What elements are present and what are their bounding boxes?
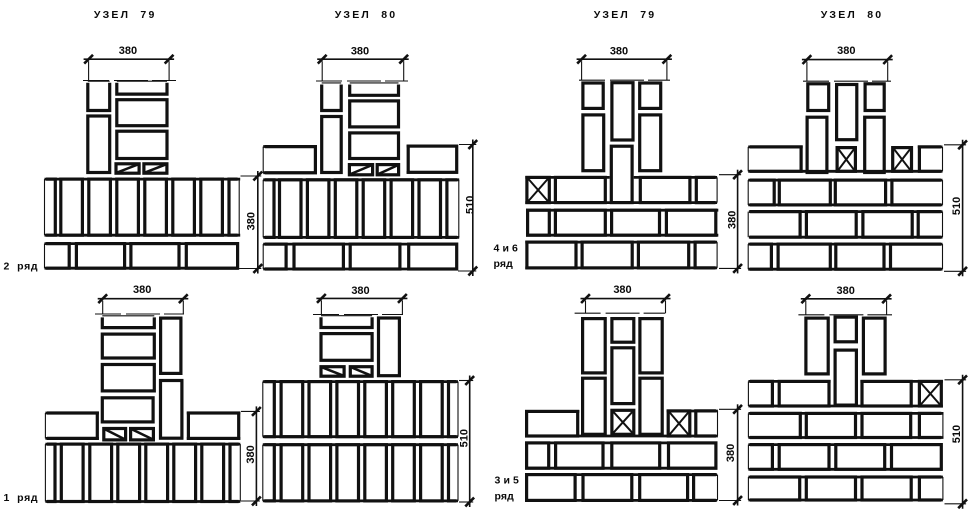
svg-text:380: 380: [245, 212, 257, 230]
svg-text:3 и 5: 3 и 5: [495, 475, 520, 487]
svg-text:ряд: ряд: [495, 491, 515, 503]
svg-text:380: 380: [351, 45, 369, 57]
svg-text:380: 380: [351, 285, 369, 297]
svg-text:510: 510: [459, 429, 471, 447]
svg-text:УЗЕЛ 79: УЗЕЛ 79: [94, 9, 157, 21]
svg-text:510: 510: [951, 197, 963, 215]
svg-text:510: 510: [465, 196, 477, 214]
svg-text:380: 380: [245, 445, 257, 463]
svg-text:УЗЕЛ 79: УЗЕЛ 79: [594, 9, 657, 21]
svg-text:4 и 6: 4 и 6: [494, 242, 519, 254]
svg-text:1 ряд: 1 ряд: [4, 492, 39, 504]
svg-text:380: 380: [837, 45, 855, 57]
svg-text:380: 380: [613, 284, 631, 296]
svg-text:380: 380: [727, 211, 739, 229]
svg-text:510: 510: [951, 425, 963, 443]
svg-text:УЗЕЛ 80: УЗЕЛ 80: [335, 9, 398, 21]
svg-text:380: 380: [725, 444, 737, 462]
svg-text:УЗЕЛ 80: УЗЕЛ 80: [821, 9, 884, 21]
svg-text:380: 380: [610, 45, 628, 57]
svg-text:ряд: ряд: [494, 258, 514, 270]
svg-text:380: 380: [837, 285, 855, 297]
svg-text:380: 380: [119, 45, 137, 57]
svg-text:380: 380: [133, 284, 151, 296]
svg-text:2 ряд: 2 ряд: [4, 260, 39, 272]
